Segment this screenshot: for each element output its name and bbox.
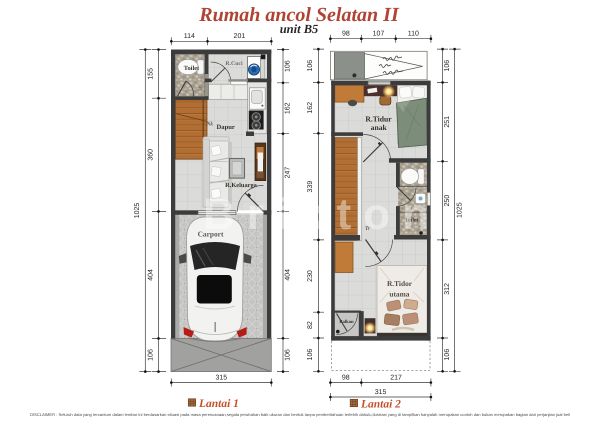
svg-text:106: 106 <box>285 60 292 72</box>
svg-text:1025: 1025 <box>456 202 463 218</box>
svg-text:162: 162 <box>285 102 292 114</box>
svg-text:Dapur: Dapur <box>217 124 235 131</box>
svg-text:110: 110 <box>408 31 419 38</box>
svg-text:162: 162 <box>307 102 314 114</box>
svg-text:82: 82 <box>307 321 314 329</box>
svg-text:fs: fs <box>199 86 202 92</box>
svg-text:Lantai 1: Lantai 1 <box>198 398 239 410</box>
svg-text:315: 315 <box>215 375 227 382</box>
svg-text:247: 247 <box>285 167 292 179</box>
svg-text:404: 404 <box>148 269 155 281</box>
svg-text:230: 230 <box>307 270 314 282</box>
svg-text:251: 251 <box>444 116 451 128</box>
svg-text:106: 106 <box>148 349 155 361</box>
svg-text:DISCLAIMER : Seluruh data yang: DISCLAIMER : Seluruh data yang tercantum… <box>30 412 570 417</box>
svg-text:107: 107 <box>373 31 385 38</box>
svg-text:1025: 1025 <box>134 203 141 219</box>
svg-text:anak: anak <box>371 123 388 132</box>
svg-text:98: 98 <box>342 31 350 38</box>
svg-text:106: 106 <box>444 60 451 72</box>
svg-text:utama: utama <box>389 290 409 299</box>
svg-text:404: 404 <box>285 269 292 281</box>
svg-text:106: 106 <box>307 349 314 361</box>
svg-text:Nk: Nk <box>206 121 214 128</box>
svg-text:R.Tidor: R.Tidor <box>387 279 413 288</box>
svg-text:106: 106 <box>444 349 451 361</box>
svg-text:114: 114 <box>184 33 195 40</box>
svg-text:217: 217 <box>390 375 402 382</box>
svg-text:312: 312 <box>444 283 451 295</box>
svg-text:Lantai 2: Lantai 2 <box>360 398 401 410</box>
svg-text:unit B5: unit B5 <box>280 22 319 36</box>
svg-text:98: 98 <box>342 375 350 382</box>
svg-text:106: 106 <box>285 349 292 361</box>
svg-text:R.Cuci: R.Cuci <box>225 60 243 67</box>
svg-text:360: 360 <box>148 149 155 161</box>
svg-text:Brixton: Brixton <box>203 190 441 239</box>
svg-text:106: 106 <box>307 60 314 72</box>
svg-text:250: 250 <box>444 195 451 207</box>
svg-text:201: 201 <box>234 33 246 40</box>
svg-text:315: 315 <box>375 389 387 396</box>
svg-text:Toilet: Toilet <box>184 65 200 72</box>
svg-text:155: 155 <box>148 68 155 80</box>
